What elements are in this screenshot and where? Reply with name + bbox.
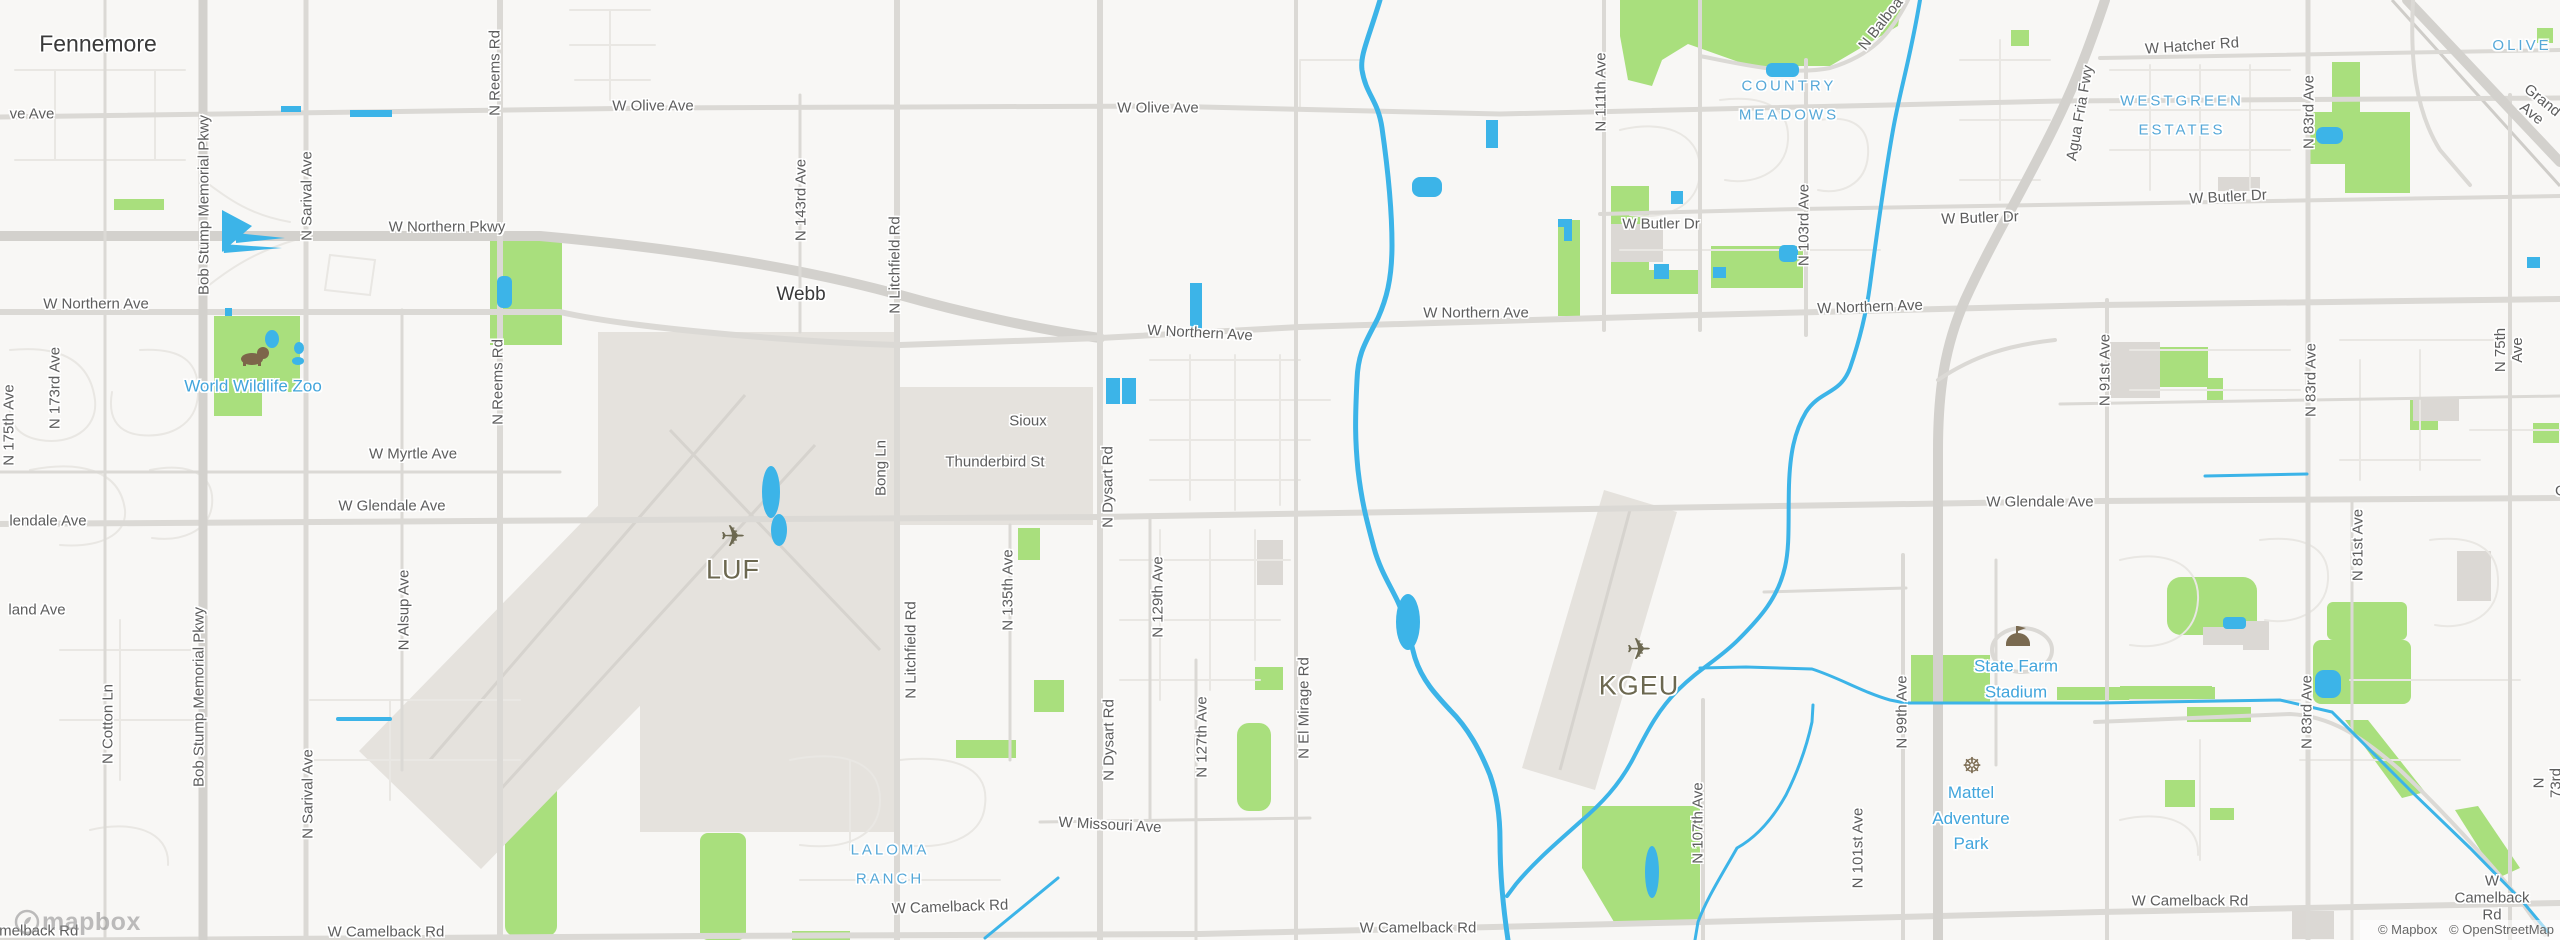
- map-canvas[interactable]: FennemoreWebbve AveW Olive AveW Olive Av…: [0, 0, 2560, 940]
- mapbox-logo-text: mapbox: [42, 908, 141, 937]
- canal-drain: [1695, 705, 1813, 940]
- canal-segment-83rd: [2205, 474, 2307, 476]
- agua-fria-river: [1356, 0, 1508, 940]
- canal-small-diagonal: [985, 878, 1058, 938]
- airport-areas: [359, 332, 1677, 869]
- grand-canal: [1700, 667, 2548, 932]
- attribution-mapbox-link[interactable]: © Mapbox: [2378, 922, 2437, 937]
- map-base-layer: [0, 0, 2560, 940]
- mapbox-logo[interactable]: mapbox: [12, 902, 141, 940]
- mapbox-logo-icon: [12, 907, 42, 937]
- attribution: © Mapbox © OpenStreetMap: [2360, 920, 2560, 940]
- attribution-osm-link[interactable]: © OpenStreetMap: [2449, 922, 2554, 937]
